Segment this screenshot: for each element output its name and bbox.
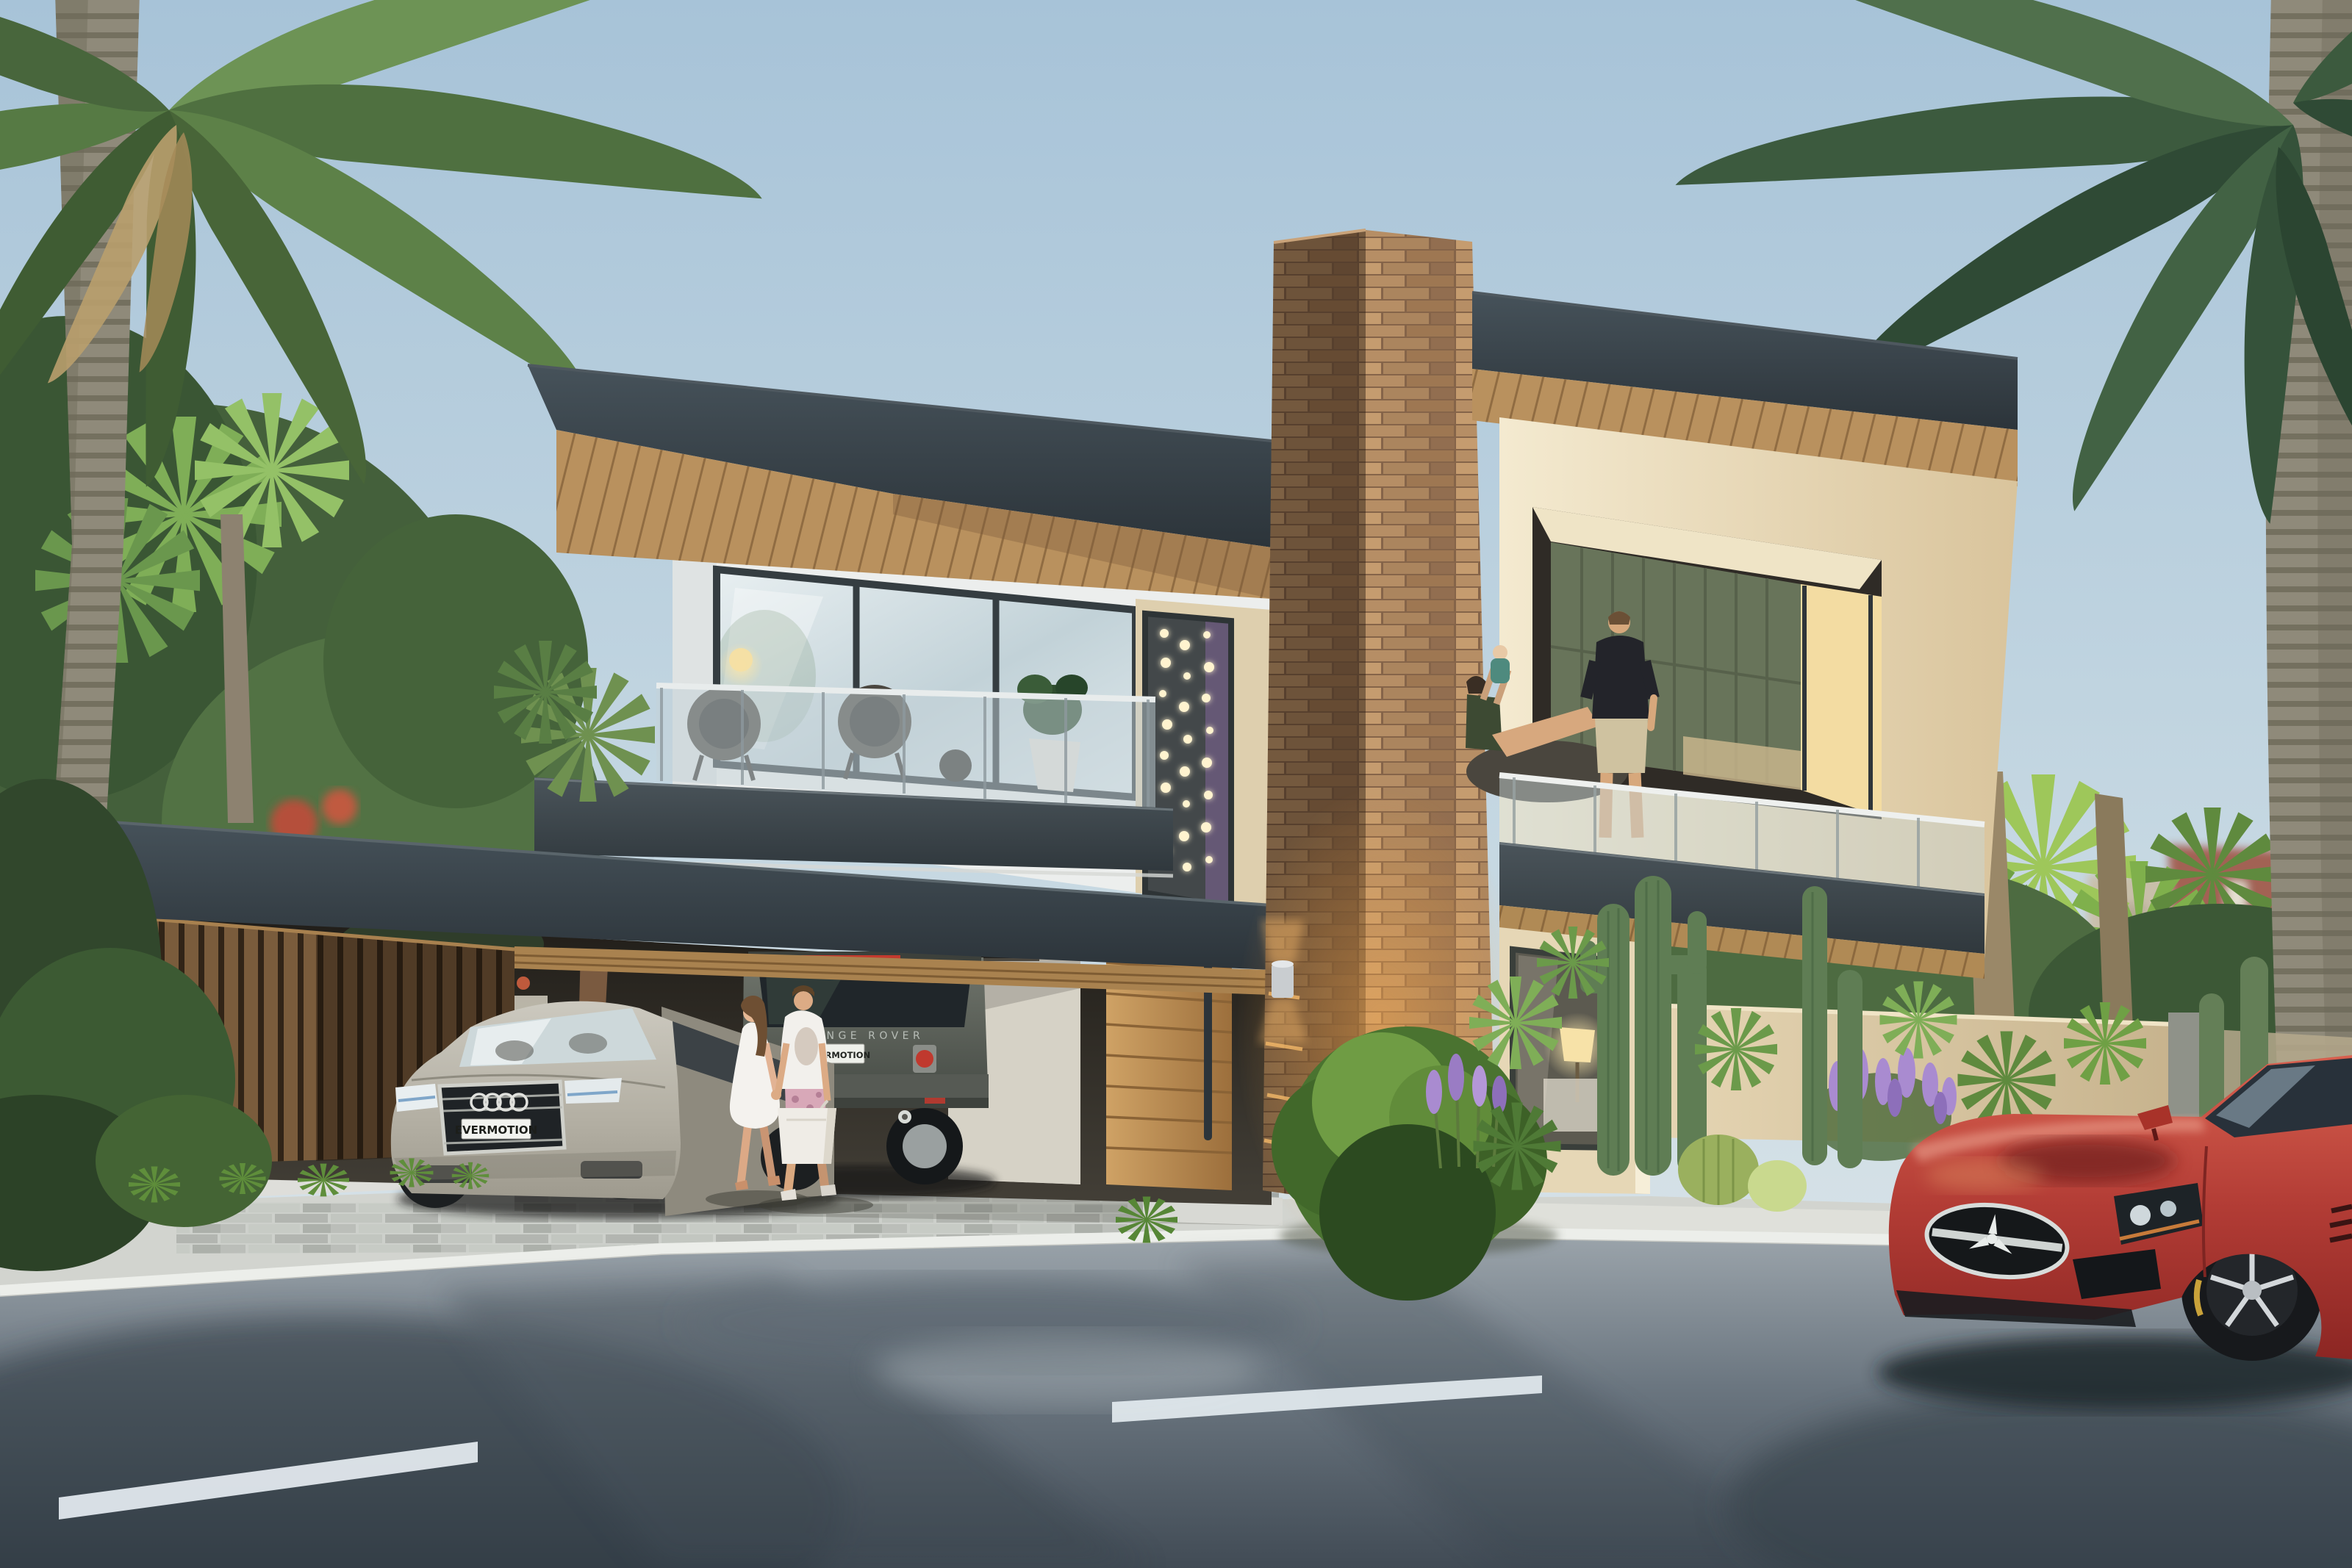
- audi-plate-text: EVERMOTION: [455, 1123, 537, 1137]
- villa-render: RANGE ROVER EVERMOTION EVERMO: [0, 0, 2352, 1568]
- rover-taillight: [916, 1050, 933, 1068]
- barrel-cactus: [1748, 1160, 1807, 1212]
- shopping-bag: [778, 1101, 836, 1164]
- interior-lamp: [729, 648, 753, 672]
